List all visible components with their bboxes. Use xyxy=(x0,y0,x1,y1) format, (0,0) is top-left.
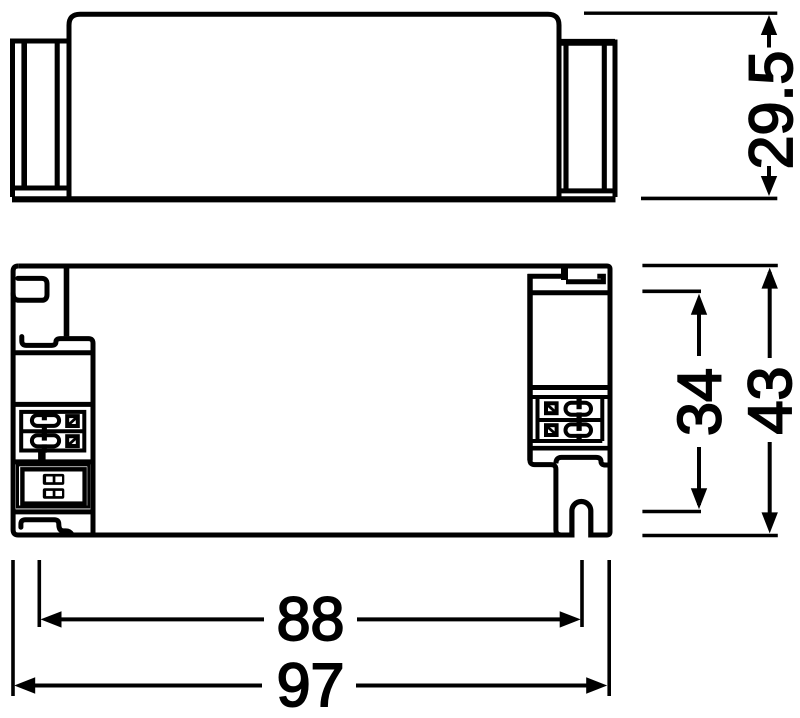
svg-text:88: 88 xyxy=(277,585,345,653)
svg-text:43: 43 xyxy=(736,367,800,435)
svg-text:29.5: 29.5 xyxy=(737,51,800,170)
svg-text:34: 34 xyxy=(665,368,733,436)
svg-text:97: 97 xyxy=(277,651,345,718)
